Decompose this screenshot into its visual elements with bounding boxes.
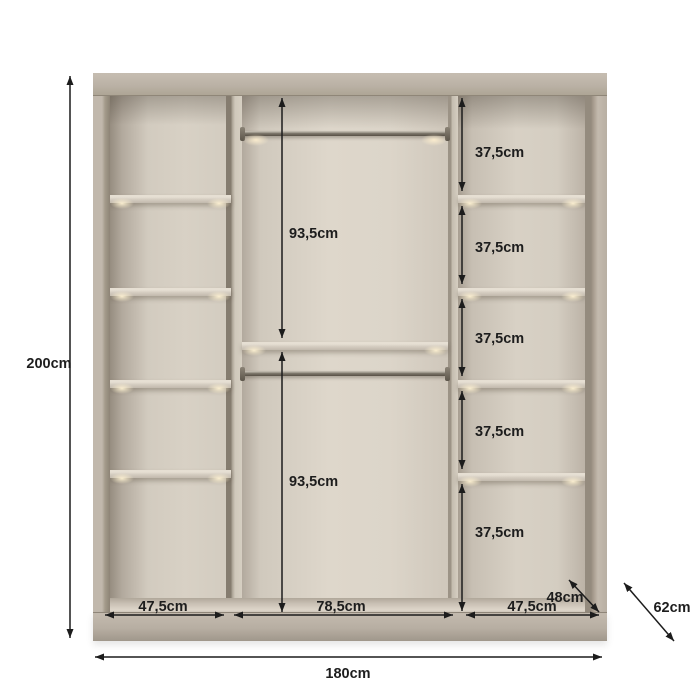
led-glow: [421, 134, 447, 146]
left-side-panel: [93, 95, 110, 612]
left-shelf-1: [110, 195, 231, 203]
middle-divider-shelf: [242, 342, 448, 350]
middle-column-back-panel: [242, 95, 448, 612]
depth-dimension-label: 62cm: [653, 600, 690, 616]
interior-floor: [110, 598, 585, 612]
width-dimension-label: 180cm: [325, 666, 370, 682]
depth-dimension-line: [624, 583, 674, 641]
top-panel: [93, 73, 607, 96]
hanging-rail-top: [243, 131, 447, 136]
left-column-back-panel: [110, 95, 226, 612]
led-glow: [243, 134, 269, 146]
vertical-divider-right: [448, 95, 458, 612]
vertical-divider-left: [226, 95, 242, 612]
right-column-back-panel: [458, 95, 585, 612]
right-shelf-2: [458, 288, 585, 296]
right-shelf-3: [458, 380, 585, 388]
left-shelf-3: [110, 380, 231, 388]
left-shelf-2: [110, 288, 231, 296]
right-shelf-1: [458, 195, 585, 203]
height-dimension-label: 200cm: [26, 356, 71, 372]
right-side-panel: [585, 95, 607, 612]
base-panel: [93, 612, 607, 641]
left-shelf-4: [110, 470, 231, 478]
wardrobe-dimension-diagram: 200cm 180cm 62cm 48cm 93,5cm 93,5cm 37,5…: [0, 0, 700, 700]
right-shelf-4: [458, 473, 585, 481]
hanging-rail-bottom: [243, 371, 447, 376]
